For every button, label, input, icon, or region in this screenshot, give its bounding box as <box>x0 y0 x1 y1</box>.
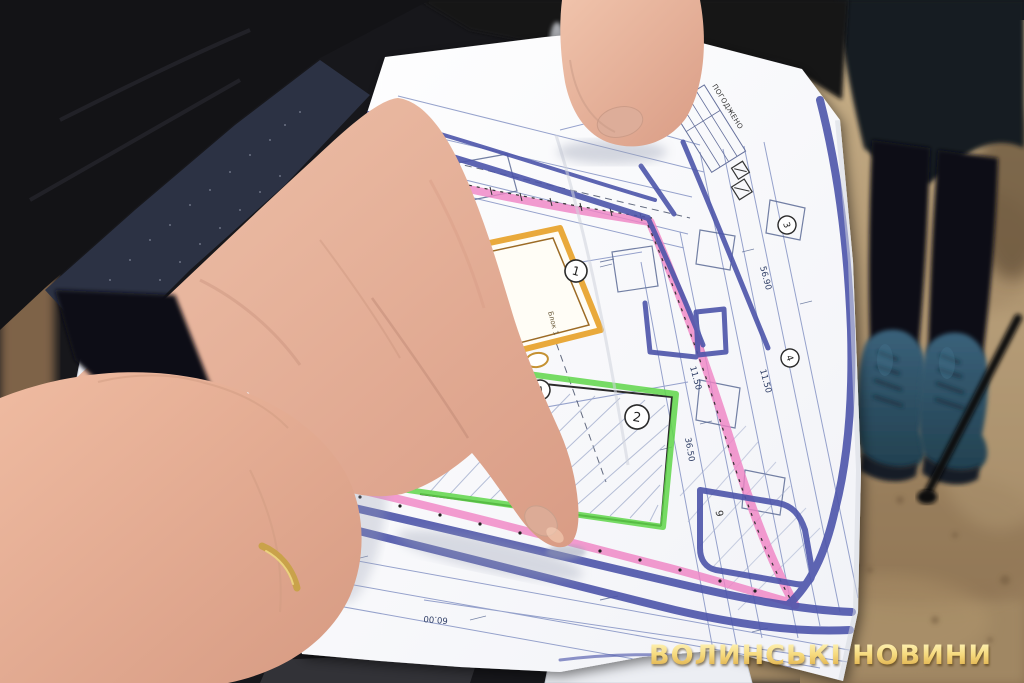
boot-right <box>919 333 989 485</box>
boot-left <box>857 330 927 482</box>
watermark-text: ВОЛИНСЬКІ НОВИНИ <box>649 640 992 671</box>
dim-60-00: 60.00 <box>423 613 448 625</box>
photo-scene: 1 2 12 А 3 4 9 <box>0 0 1024 683</box>
scene-svg: 1 2 12 А 3 4 9 <box>0 0 1024 683</box>
person-leg-left <box>869 140 930 352</box>
